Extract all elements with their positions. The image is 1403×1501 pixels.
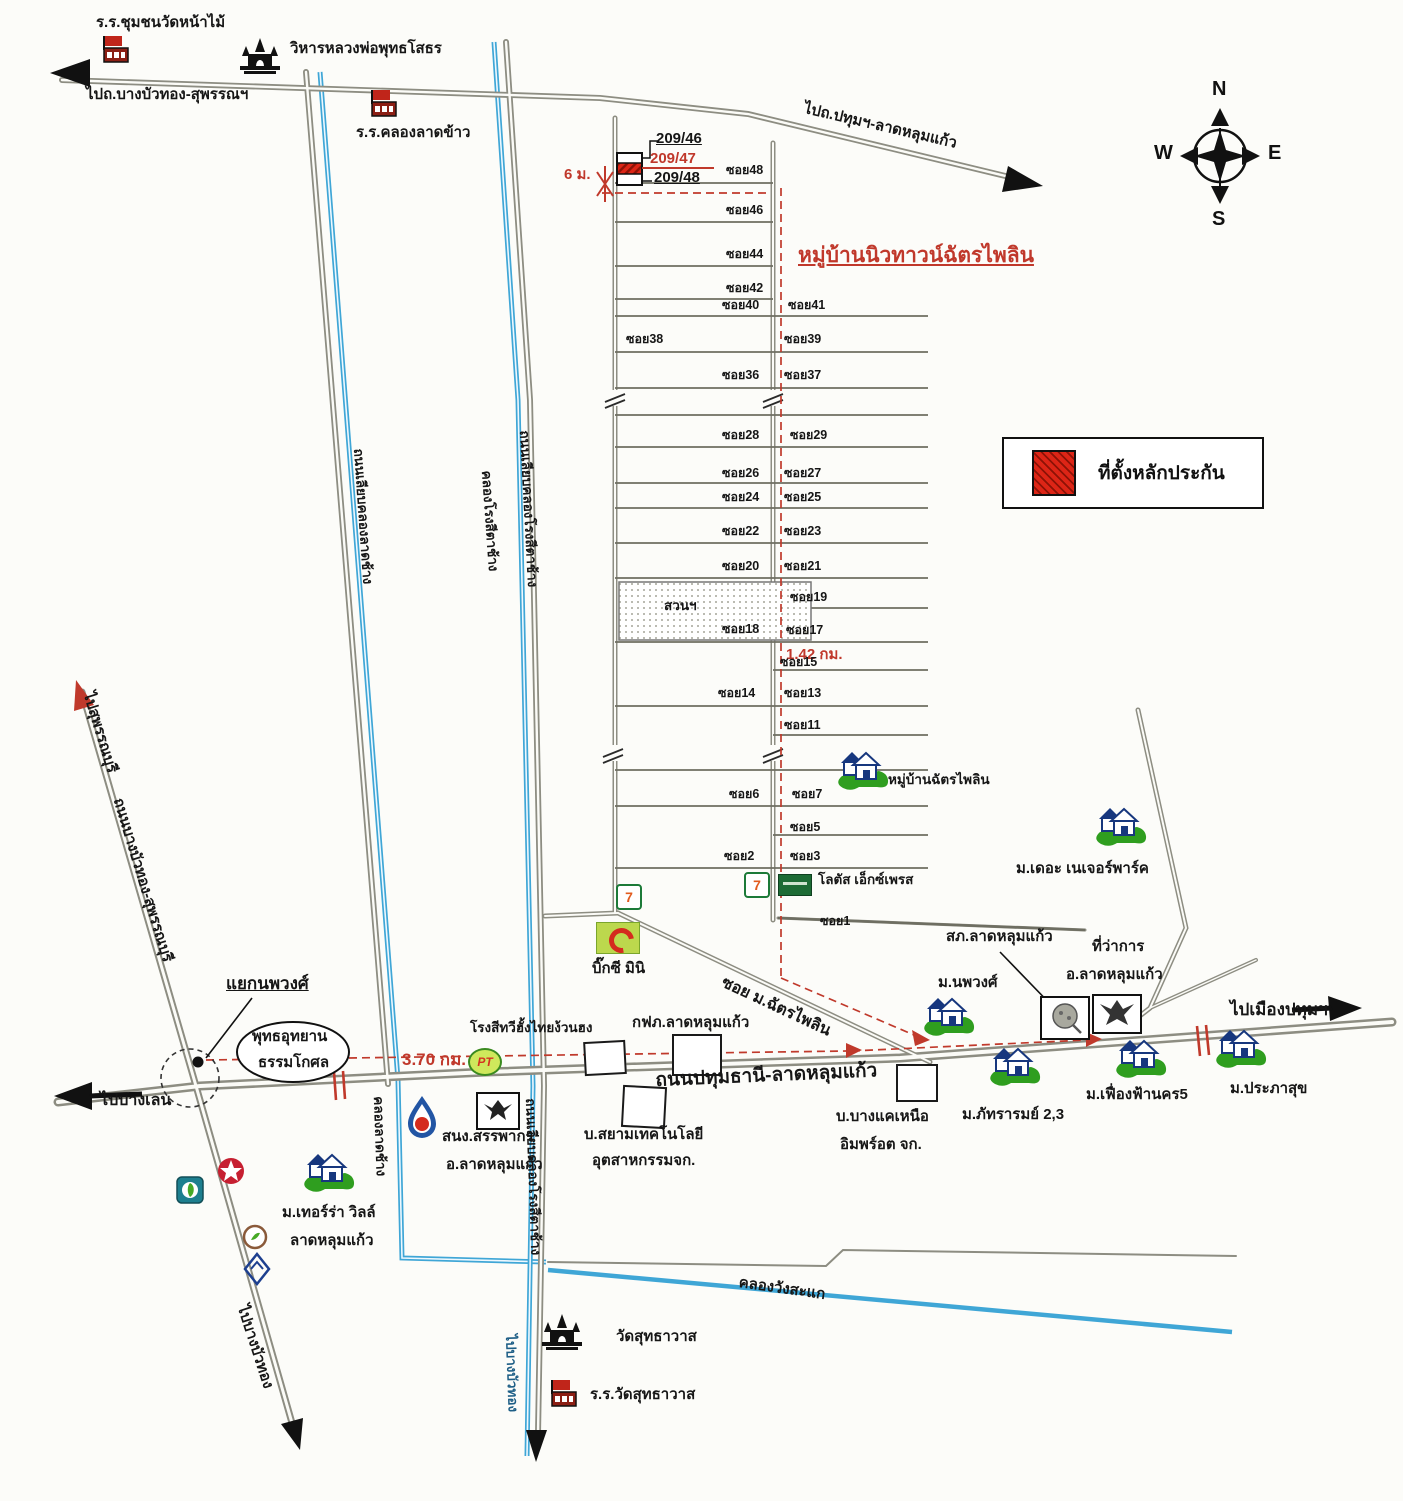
- collateral-swatch-icon: [1032, 450, 1076, 496]
- title-estate_name-label: หมู่บ้านนิวทาวน์ฉัตรไพลิน: [798, 244, 1034, 268]
- frontage-marker: [597, 166, 613, 202]
- places-nature_park-label: ม.เดอะ เนเจอร์พาร์ค: [1016, 860, 1149, 877]
- places-big_c_mini-label: บิ๊กซี มินิ: [592, 960, 645, 977]
- rice-mill-box: [583, 1040, 627, 1076]
- temple-icon: [540, 1314, 584, 1357]
- places-bangkae_line2-label: อิมพร์อต จก.: [840, 1136, 922, 1153]
- sois-left-6-label: ซอย36: [722, 368, 759, 382]
- sois-right-9-label: ซอย17: [786, 623, 823, 637]
- sois-right-2-label: ซอย37: [784, 368, 821, 382]
- sois-right-0-label: ซอย41: [788, 298, 825, 312]
- park-area: [619, 582, 811, 640]
- seven-label: 7: [753, 877, 761, 893]
- school-icon: [546, 1378, 580, 1415]
- legend-label: ที่ตั้งหลักประกัน: [1098, 458, 1225, 488]
- places-siam_tech_line1-label: บ.สยามเทคโนโลยี: [584, 1126, 703, 1143]
- places-lotus_express-label: โลตัส เอ็กซ์เพรส: [818, 872, 913, 888]
- sois-right-4-label: ซอย27: [784, 466, 821, 480]
- seven-label: 7: [625, 889, 633, 905]
- village-icon: [834, 748, 890, 797]
- police-station-icon: [1040, 996, 1090, 1045]
- temple-icon: [238, 38, 282, 81]
- sois-left-0-label: ซอย48: [726, 163, 763, 177]
- canal-wangsakae-line: [548, 1270, 1232, 1332]
- sois-right-11-label: ซอย13: [784, 686, 821, 700]
- compass-w-label: W: [1154, 142, 1173, 165]
- sois-right-8-label: ซอย19: [790, 590, 827, 604]
- places-buddha_park_line1-label: พุทธอุทยาน: [252, 1028, 327, 1045]
- sois-left-8-label: ซอย26: [722, 466, 759, 480]
- directions-pathum-label: ไปเมืองปทุมฯ: [1230, 1000, 1328, 1020]
- canals-latchang-label: คลองลาดช้าง: [370, 1096, 388, 1176]
- collateral-unit_mid-label: 209/47: [650, 150, 696, 169]
- directions-banglen-label: ไปบางเลน: [100, 1092, 171, 1110]
- legend: ที่ตั้งหลักประกัน: [1002, 437, 1264, 509]
- places-police_station-label: สภ.ลาดหลุมแก้ว: [946, 928, 1053, 945]
- collateral-unit_top-label: 209/46: [656, 130, 702, 147]
- compass-n-label: N: [1212, 78, 1226, 101]
- places-terra_ville_line2-label: ลาดหลุมแก้ว: [290, 1232, 374, 1249]
- sois-right-10-label: ซอย15: [780, 655, 817, 669]
- sois-left-3-label: ซอย42: [726, 281, 763, 295]
- places-terra_ville_line1-label: ม.เทอร์ร่า วิลล์: [282, 1204, 376, 1221]
- places-district_office_line1-label: ที่ว่าการ: [1092, 938, 1144, 955]
- school-icon: [366, 88, 400, 125]
- village-icon: [1092, 804, 1148, 853]
- pt-label: PT: [477, 1055, 492, 1069]
- sois-left-7-label: ซอย28: [722, 428, 759, 442]
- collateral-frontage-label: 6 ม.: [564, 166, 591, 183]
- gas-logo-icon: [242, 1224, 268, 1255]
- diamond-logo-icon: [242, 1252, 272, 1291]
- places-junction_nopphawong-label: แยกนพวงศ์: [226, 974, 309, 994]
- sois-left-1-label: ซอย46: [726, 203, 763, 217]
- sois-right-16-label: ซอย1: [820, 914, 850, 928]
- places-wihan_luangpho-label: วิหารหลวงพ่อพุทธโสธร: [290, 40, 442, 57]
- sois-right-14-label: ซอย5: [790, 820, 820, 834]
- compass-rose: N E S W: [1148, 76, 1293, 241]
- estate-grid-lines: [615, 183, 1085, 930]
- places-wat_sutthawat-label: วัดสุทธาวาส: [616, 1328, 697, 1345]
- village-icon: [300, 1150, 356, 1199]
- places-buddha_park_line2-label: ธรรมโกศล: [258, 1054, 329, 1071]
- sois-right-6-label: ซอย23: [784, 524, 821, 538]
- sois-left-11-label: ซอย20: [722, 559, 759, 573]
- places-phattararom-label: ม.ภัทรารมย์ 2,3: [962, 1106, 1064, 1123]
- big-c-icon: [596, 922, 640, 954]
- places-nopphawong_village-label: ม.นพวงศ์: [938, 974, 997, 991]
- sois-left-4-label: ซอย40: [722, 298, 759, 312]
- collateral-unit_bottom-label: 209/48: [654, 169, 700, 186]
- places-rice_mill-label: โรงสีทวีฮั้งไทยง้วนฮง: [470, 1020, 592, 1036]
- places-revenue_line2-label: อ.ลาดหลุมแก้ว: [446, 1156, 543, 1173]
- village-icon: [920, 994, 976, 1043]
- lotus-express-icon: [778, 874, 812, 896]
- village-icon: [1112, 1036, 1168, 1085]
- village-icon: [986, 1044, 1042, 1093]
- places-district_office_line2-label: อ.ลาดหลุมแก้ว: [1066, 966, 1163, 983]
- sois-right-5-label: ซอย25: [784, 490, 821, 504]
- places-village_chatpailin-label: หมู่บ้านฉัตรไพลิน: [888, 772, 990, 788]
- school-icon: [98, 34, 132, 71]
- places-school_wat_sutthawat-label: ร.ร.วัดสุทธาวาส: [590, 1386, 695, 1403]
- places-bangkae_line1-label: บ.บางแคเหนือ: [836, 1108, 929, 1125]
- sois-left-9-label: ซอย24: [722, 490, 759, 504]
- sois-right-12-label: ซอย11: [784, 718, 821, 732]
- sois-right-3-label: ซอย29: [790, 428, 827, 442]
- sois-left-15-label: ซอย2: [724, 849, 754, 863]
- sois-right-1-label: ซอย39: [784, 332, 821, 346]
- sois-right-13-label: ซอย7: [792, 787, 822, 801]
- places-school_khlong_latkhao-label: ร.ร.คลองลาดข้าว: [356, 124, 470, 141]
- places-fuangfa_nakhon5-label: ม.เฟื่องฟ้านคร5: [1086, 1086, 1188, 1103]
- bangkae-box: [896, 1064, 938, 1102]
- sois-left-14-label: ซอย6: [729, 787, 759, 801]
- places-revenue_line1-label: สนง.สรรพากร: [442, 1128, 534, 1145]
- places-prapasuk-label: ม.ประภาสุข: [1230, 1080, 1307, 1097]
- sois-left-10-label: ซอย22: [722, 524, 759, 538]
- village-icon: [1212, 1026, 1268, 1075]
- seven-eleven-icon: 7: [616, 884, 642, 910]
- places-school_wat_namai-label: ร.ร.ชุมชนวัดหน้าไม้: [96, 14, 225, 31]
- bangchak-icon: [176, 1176, 204, 1209]
- road-break-marks: [603, 390, 783, 763]
- sois-right-7-label: ซอย21: [784, 559, 821, 573]
- places-park-label: สวนฯ: [664, 598, 697, 614]
- places-siam_tech_line2-label: อุตสาหกรรมจก.: [592, 1152, 695, 1169]
- caltex-icon: [216, 1156, 246, 1191]
- sois-left-13-label: ซอย14: [718, 686, 755, 700]
- sois-left-5-label: ซอย38: [626, 332, 663, 346]
- directions-west_top-label: ไปถ.บางบัวทอง-สุพรรณฯ: [86, 86, 248, 103]
- sois-right-15-label: ซอย3: [790, 849, 820, 863]
- pt-station-icon: PT: [468, 1048, 502, 1076]
- sois-left-2-label: ซอย44: [726, 247, 763, 261]
- ptt-icon: [404, 1094, 440, 1143]
- compass-e-label: E: [1268, 142, 1281, 165]
- district-office-icon: [1092, 994, 1142, 1039]
- distances-to_junction-label: 3.70 กม.: [402, 1050, 466, 1070]
- sois-left-12-label: ซอย18: [722, 622, 759, 636]
- directions-bangbuathong_s-label: ไปบางบัวทอง: [502, 1334, 520, 1412]
- places-pea_office-label: กฟภ.ลาดหลุมแก้ว: [632, 1014, 749, 1031]
- location-map: ที่ตั้งหลักประกัน N E S W 7 7 PT: [0, 0, 1403, 1501]
- compass-s-label: S: [1212, 208, 1225, 231]
- seven-eleven-icon: 7: [744, 872, 770, 898]
